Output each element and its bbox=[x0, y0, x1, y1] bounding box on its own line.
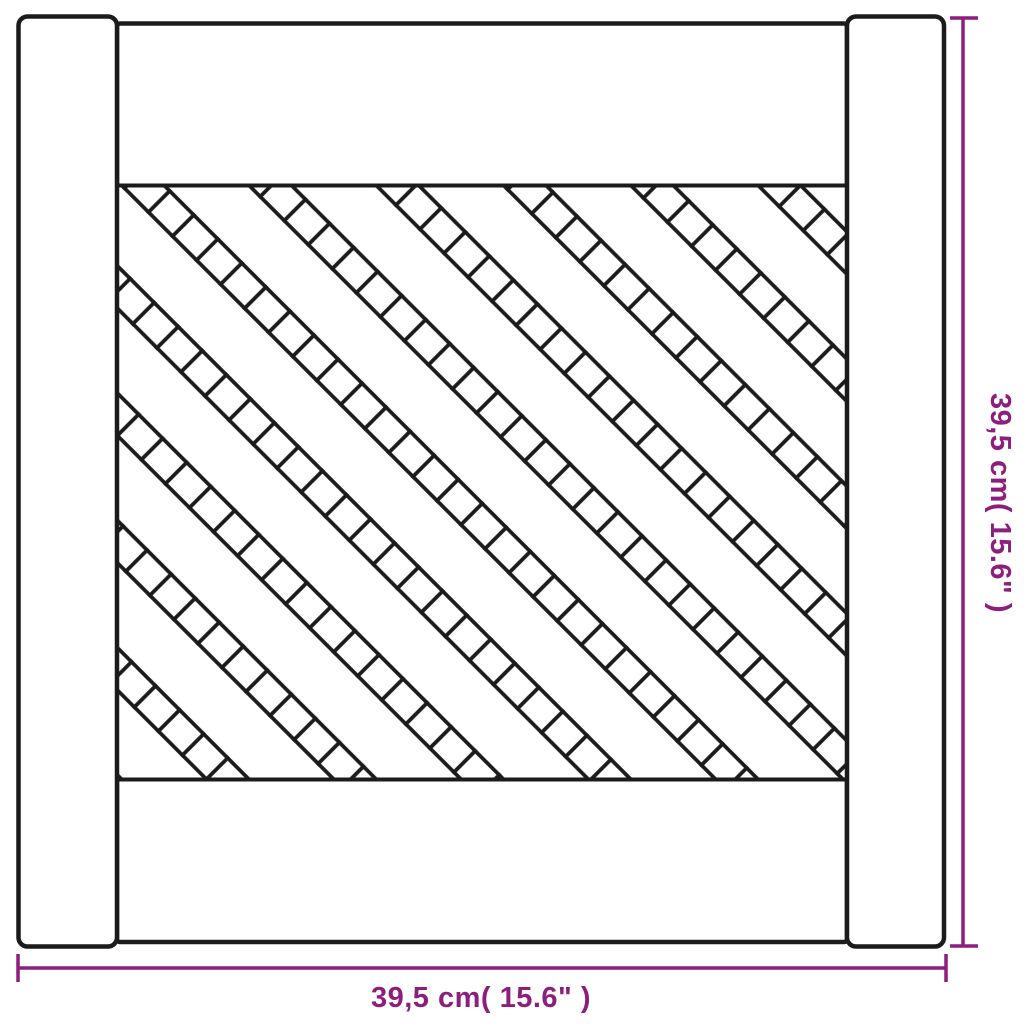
diagram-canvas: 39,5 cm( 15.6" ) 39,5 cm( 15.6" ) bbox=[0, 0, 1024, 1024]
lattice-panel bbox=[117, 186, 847, 780]
left-stile bbox=[19, 17, 118, 947]
width-dimension-label: 39,5 cm( 15.6" ) bbox=[371, 982, 591, 1014]
height-dimension-label: 39,5 cm( 15.6" ) bbox=[984, 393, 1016, 613]
height-dimension bbox=[950, 18, 978, 946]
product-dimension-diagram: 39,5 cm( 15.6" ) 39,5 cm( 15.6" ) bbox=[0, 0, 1024, 1024]
width-dimension bbox=[18, 954, 946, 982]
cabinet-door-drawing bbox=[19, 17, 945, 947]
right-stile bbox=[847, 17, 944, 947]
